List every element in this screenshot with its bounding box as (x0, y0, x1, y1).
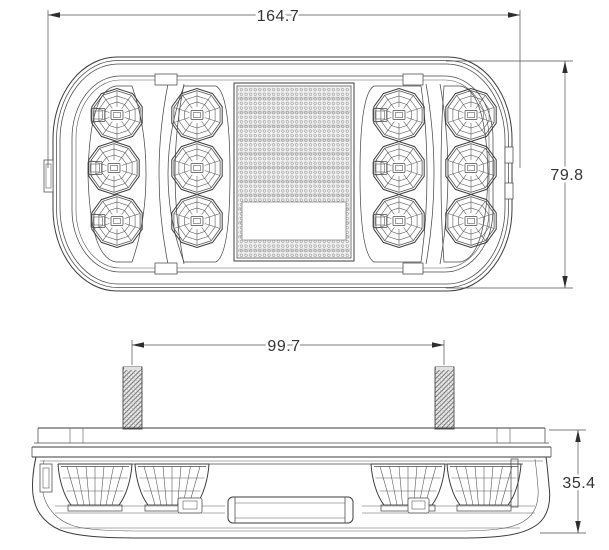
drawing-page: { "drawing": { "type": "technical-dimens… (0, 0, 609, 550)
led-reflector (88, 142, 139, 195)
dimension-height-value: 79.8 (550, 167, 583, 184)
clip-bottom-left (155, 263, 177, 274)
dimension-height: 79.8 (446, 61, 584, 288)
reflector-panel (234, 83, 354, 261)
mounting-stud-left (123, 367, 142, 429)
clip-bottom-right (403, 263, 423, 274)
dimension-stud-spacing: 99.7 (132, 338, 444, 365)
dimension-stud-spacing-value: 99.7 (267, 338, 300, 355)
led-reflector (373, 195, 424, 248)
led-reflector (172, 89, 222, 142)
led-cell-divider-right (426, 84, 448, 264)
side-clip-right-2 (505, 183, 513, 199)
dimension-arrow (575, 430, 580, 442)
label-window (242, 202, 346, 240)
side-view (32, 367, 551, 538)
dimension-arrow (562, 276, 567, 288)
front-view (44, 57, 513, 291)
cone-array (55, 464, 535, 513)
led-reflector (91, 195, 142, 248)
led-reflector (446, 89, 496, 142)
led-reflector (446, 142, 496, 195)
clip-top-right (403, 74, 423, 85)
cable-connector (228, 497, 353, 523)
dimension-depth-value: 35.4 (562, 475, 595, 492)
led-reflector (373, 142, 424, 195)
mounting-stud-right (435, 367, 454, 429)
clip-top-left (155, 74, 177, 85)
led-reflector (373, 89, 424, 142)
mounting-plate (32, 428, 551, 464)
led-reflector (446, 195, 496, 248)
dimension-arrow (575, 521, 580, 533)
side-tab-left (44, 160, 53, 192)
led-reflector (91, 89, 142, 142)
dimension-arrow (508, 12, 520, 17)
side-clip-right-1 (505, 147, 513, 163)
dimension-arrow (132, 342, 144, 347)
dimension-arrow (48, 12, 60, 17)
led-reflector (172, 142, 222, 195)
technical-drawing: 164.7 79.8 99.7 35.4 (0, 0, 609, 550)
cone-tray-lines (55, 506, 535, 513)
led-cone (58, 464, 132, 511)
dimension-arrow (562, 61, 567, 73)
led-cone (447, 464, 521, 511)
led-reflector (172, 195, 222, 248)
dimension-arrow (432, 342, 444, 347)
dimension-width-value: 164.7 (257, 8, 300, 25)
